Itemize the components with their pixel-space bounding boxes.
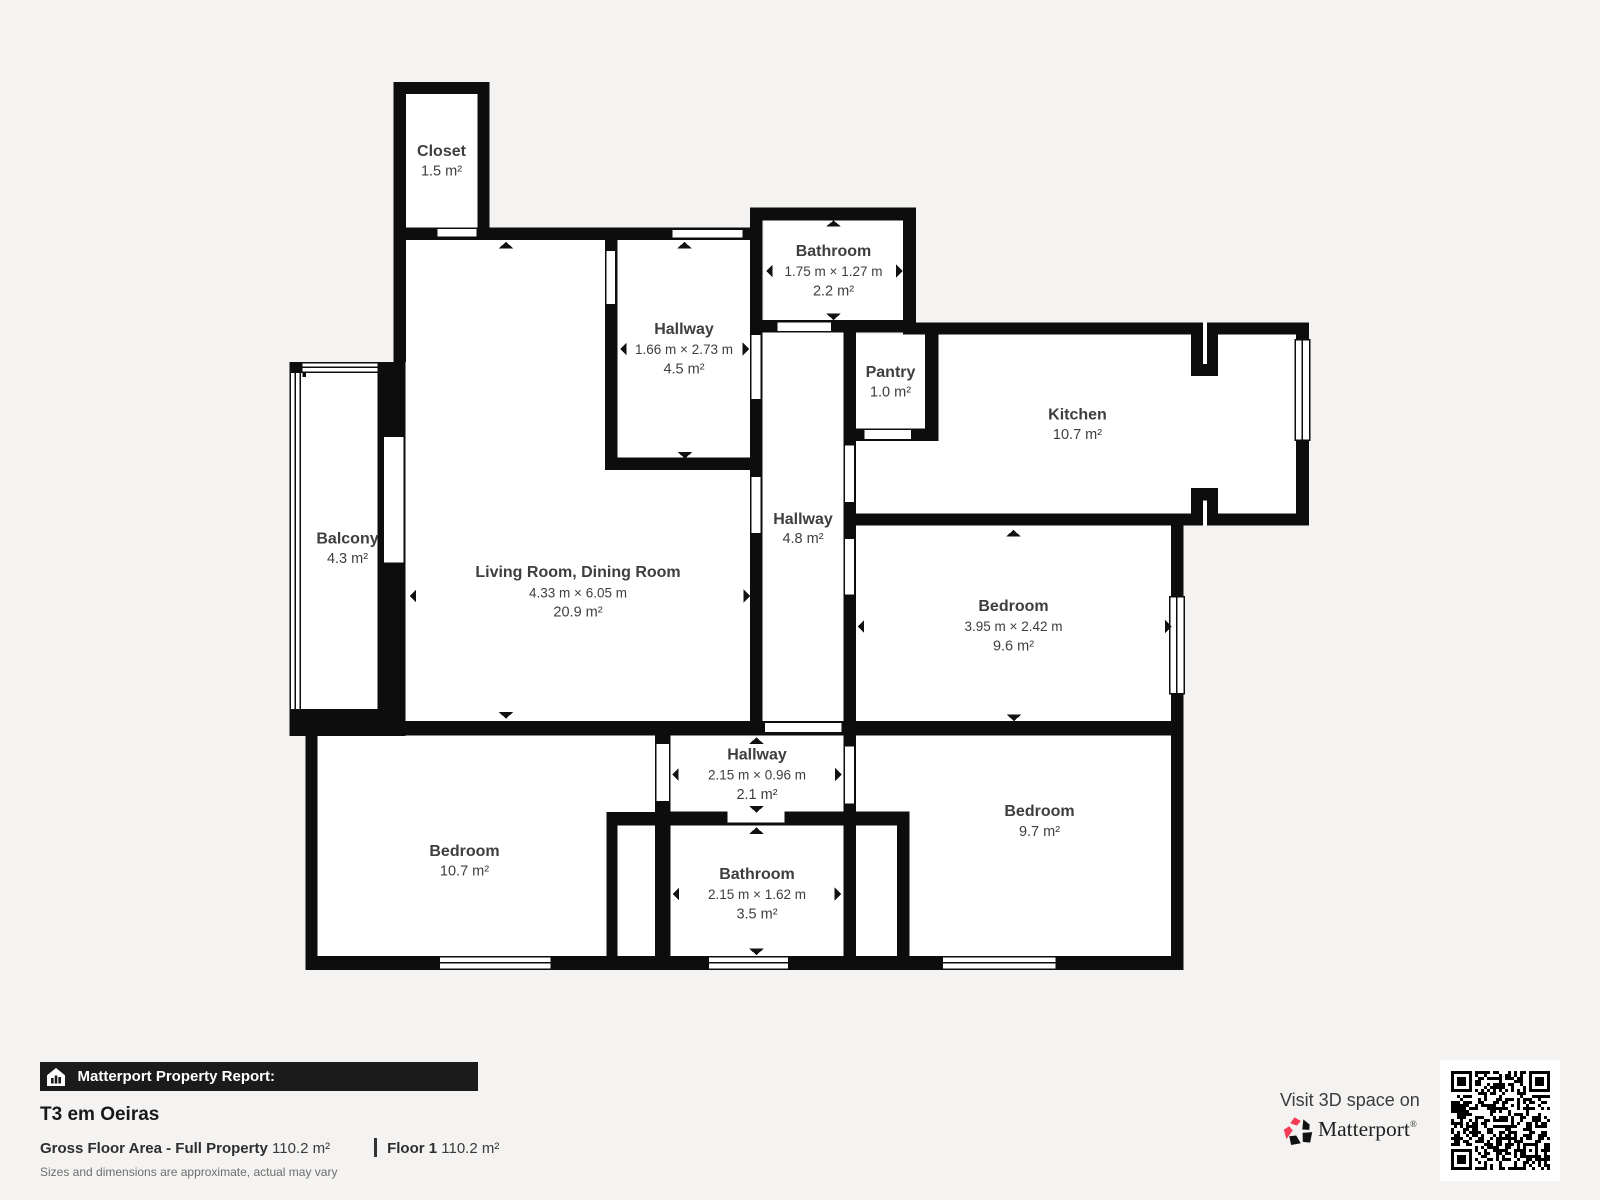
svg-text:Balcony: Balcony — [316, 531, 378, 548]
svg-text:2.15 m × 0.96 m: 2.15 m × 0.96 m — [708, 767, 806, 782]
svg-text:3.95 m × 2.42 m: 3.95 m × 2.42 m — [965, 619, 1063, 634]
svg-text:4.33 m × 6.05 m: 4.33 m × 6.05 m — [529, 585, 627, 600]
svg-text:1.0 m²: 1.0 m² — [870, 384, 911, 400]
svg-text:Bedroom: Bedroom — [978, 598, 1048, 615]
svg-text:10.7 m²: 10.7 m² — [1053, 427, 1102, 443]
svg-text:Hallway: Hallway — [654, 321, 714, 338]
svg-text:2.2 m²: 2.2 m² — [813, 283, 854, 299]
svg-text:Living Room, Dining Room: Living Room, Dining Room — [475, 564, 680, 581]
svg-text:Bathroom: Bathroom — [796, 243, 872, 260]
svg-text:Hallway: Hallway — [727, 747, 787, 764]
svg-text:Bathroom: Bathroom — [719, 866, 795, 883]
svg-text:Bedroom: Bedroom — [1004, 803, 1074, 820]
svg-text:4.3 m²: 4.3 m² — [327, 551, 368, 567]
svg-text:Kitchen: Kitchen — [1048, 407, 1107, 424]
svg-text:4.5 m²: 4.5 m² — [663, 361, 704, 377]
svg-text:Hallway: Hallway — [773, 511, 833, 528]
svg-text:4.8 m²: 4.8 m² — [782, 531, 823, 547]
svg-text:9.6 m²: 9.6 m² — [993, 638, 1034, 654]
svg-text:20.9 m²: 20.9 m² — [553, 604, 602, 620]
svg-text:2.15 m × 1.62 m: 2.15 m × 1.62 m — [708, 887, 806, 902]
svg-text:3.5 m²: 3.5 m² — [736, 906, 777, 922]
svg-text:10.7 m²: 10.7 m² — [440, 863, 489, 879]
svg-text:1.66 m × 2.73 m: 1.66 m × 2.73 m — [635, 342, 733, 357]
svg-text:1.75 m × 1.27 m: 1.75 m × 1.27 m — [785, 264, 883, 279]
svg-text:2.1 m²: 2.1 m² — [736, 787, 777, 803]
svg-text:Pantry: Pantry — [866, 364, 916, 381]
svg-text:Bedroom: Bedroom — [429, 843, 499, 860]
svg-text:Closet: Closet — [417, 143, 467, 160]
svg-text:1.5 m²: 1.5 m² — [421, 164, 462, 180]
svg-text:9.7 m²: 9.7 m² — [1019, 824, 1060, 840]
